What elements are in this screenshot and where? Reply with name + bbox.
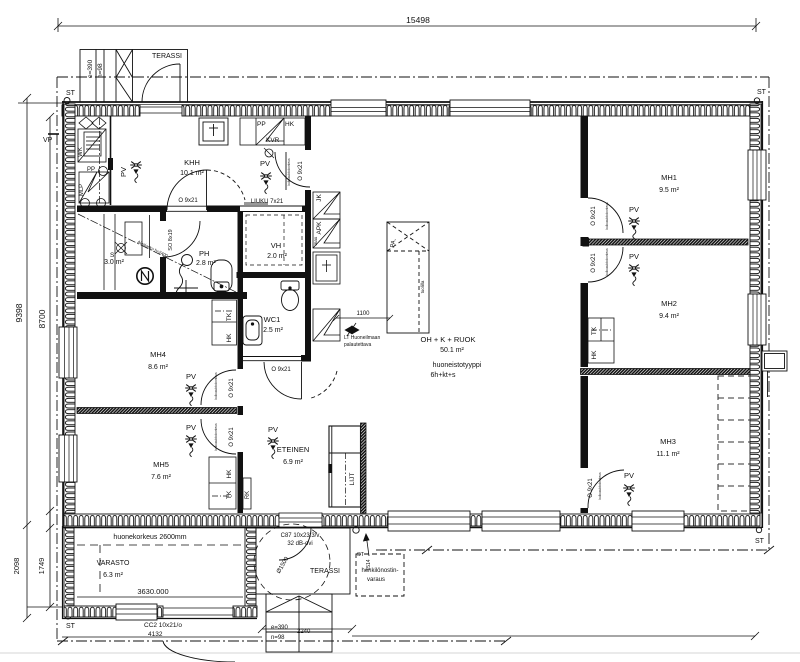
svg-text:MH3: MH3 [660,437,676,446]
svg-text:palautettava: palautettava [344,342,371,348]
svg-text:PV: PV [629,252,639,261]
svg-text:PV: PV [186,423,196,432]
svg-text:PH: PH [199,249,209,258]
svg-text:PP: PP [257,121,266,128]
svg-text:O 9x21: O 9x21 [591,206,597,226]
svg-text:2.8 m²: 2.8 m² [196,260,217,267]
svg-text:3630.000: 3630.000 [137,587,168,596]
svg-text:8.6 m²: 8.6 m² [148,364,169,371]
svg-text:PV: PV [629,205,639,214]
svg-text:9.5 m²: 9.5 m² [659,187,680,194]
svg-text:O 9x21: O 9x21 [229,378,235,398]
svg-text:HK: HK [591,350,598,360]
svg-text:6h+kt+s: 6h+kt+s [431,372,456,379]
svg-text:1749: 1749 [37,558,46,575]
svg-text:O 9x21: O 9x21 [298,161,304,181]
svg-text:PV: PV [186,372,196,381]
svg-text:ETEINEN: ETEINEN [277,445,310,454]
svg-text:CC2 10x21/o: CC2 10x21/o [144,622,182,629]
svg-text:10.1 m²: 10.1 m² [180,170,204,177]
svg-text:6.9 m²: 6.9 m² [283,459,304,466]
svg-text:MH1: MH1 [661,173,677,182]
svg-text:LIJT: LIJT [349,473,356,486]
svg-text:tuolilla: tuolilla [420,280,425,293]
svg-text:S: S [110,252,115,259]
svg-text:VH: VH [271,241,281,250]
svg-text:TERASSI: TERASSI [310,568,340,575]
svg-text:RK: RK [245,491,251,499]
svg-text:KHH: KHH [184,158,200,167]
svg-text:PV: PV [268,425,278,434]
svg-text:HK: HK [226,333,233,343]
svg-text:O 9x21: O 9x21 [178,198,198,204]
svg-text:LT Huoneilmaan: LT Huoneilmaan [344,335,380,341]
svg-text:VP: VP [43,137,53,144]
svg-text:3.0 m²: 3.0 m² [104,259,125,266]
svg-text:e=390: e=390 [271,625,289,631]
svg-text:2240: 2240 [297,629,311,635]
svg-text:1514: 1514 [366,559,372,570]
svg-text:APK: APK [316,221,323,235]
svg-text:e=390: e=390 [87,59,94,78]
svg-text:ST: ST [757,89,767,96]
svg-text:HK: HK [226,469,233,479]
svg-text:PP: PP [87,167,95,173]
svg-text:VARASTO: VARASTO [97,560,130,567]
svg-text:KVR: KVR [266,137,280,144]
svg-text:PV: PV [119,167,128,177]
svg-text:TK: TK [226,490,233,499]
svg-text:kulkuaukkokorkeus: kulkuaukkokorkeus [605,202,609,230]
svg-text:9.4 m²: 9.4 m² [659,313,680,320]
svg-text:2.5 m²: 2.5 m² [263,327,284,334]
svg-text:ST: ST [66,90,76,97]
svg-text:O 9x21: O 9x21 [591,253,597,273]
svg-text:1100: 1100 [357,311,371,317]
svg-text:kulkuaukkokorkeus: kulkuaukkokorkeus [287,158,291,186]
svg-text:O 9x21: O 9x21 [229,427,235,447]
svg-text:huoneistotyyppi: huoneistotyyppi [433,362,482,369]
svg-text:2.0 m²: 2.0 m² [267,253,288,260]
svg-text:TK: TK [591,326,598,335]
svg-text:kulkuaukkokorkeus: kulkuaukkokorkeus [214,372,218,400]
svg-text:n=98: n=98 [271,635,285,641]
svg-text:C87 10x23.3/v: C87 10x23.3/v [281,533,320,539]
svg-text:PV: PV [260,159,270,168]
svg-text:ST: ST [357,552,365,558]
svg-text:2098: 2098 [12,558,21,575]
svg-text:kulkuaukkokorkeus: kulkuaukkokorkeus [605,248,609,276]
svg-text:PV: PV [624,471,634,480]
svg-text:LIUKU 7x21: LIUKU 7x21 [251,199,284,205]
svg-text:WC1: WC1 [264,315,281,324]
svg-text:4132: 4132 [148,631,163,638]
svg-text:mau: mau [313,236,318,245]
svg-text:MH4: MH4 [150,350,166,359]
svg-text:8700: 8700 [37,309,47,328]
svg-text:MLP: MLP [79,184,85,196]
svg-text:50.1 m²: 50.1 m² [440,347,464,354]
svg-text:ST: ST [755,538,765,545]
svg-text:32 dB-ovi: 32 dB-ovi [287,541,312,547]
svg-text:WK: WK [78,147,84,157]
svg-text:O 9x21: O 9x21 [588,478,594,498]
svg-text:6.3 m²: 6.3 m² [103,572,124,579]
svg-text:9398: 9398 [14,303,24,322]
svg-text:OH + K + RUOK: OH + K + RUOK [420,335,475,344]
svg-text:TK: TK [226,312,233,321]
svg-text:7.6 m²: 7.6 m² [151,474,172,481]
svg-text:varaus: varaus [367,577,385,583]
svg-text:15498: 15498 [406,15,430,25]
svg-text:MH5: MH5 [153,460,169,469]
svg-text:MH2: MH2 [661,299,677,308]
svg-text:kulkuaukkokorkeus: kulkuaukkokorkeus [214,423,218,451]
svg-text:n=98: n=98 [97,63,104,78]
svg-text:huonekorkeus 2600mm: huonekorkeus 2600mm [113,534,186,541]
svg-text:TERASSI: TERASSI [152,53,182,60]
svg-text:11.1 m²: 11.1 m² [656,451,680,458]
svg-text:JK: JK [316,194,323,202]
svg-text:O 9x21: O 9x21 [271,367,291,373]
svg-text:ST: ST [66,623,76,630]
svg-text:SO 8x19: SO 8x19 [168,229,174,250]
svg-text:kulkuaukkokorkeus: kulkuaukkokorkeus [598,472,602,500]
svg-text:HK: HK [285,121,295,128]
